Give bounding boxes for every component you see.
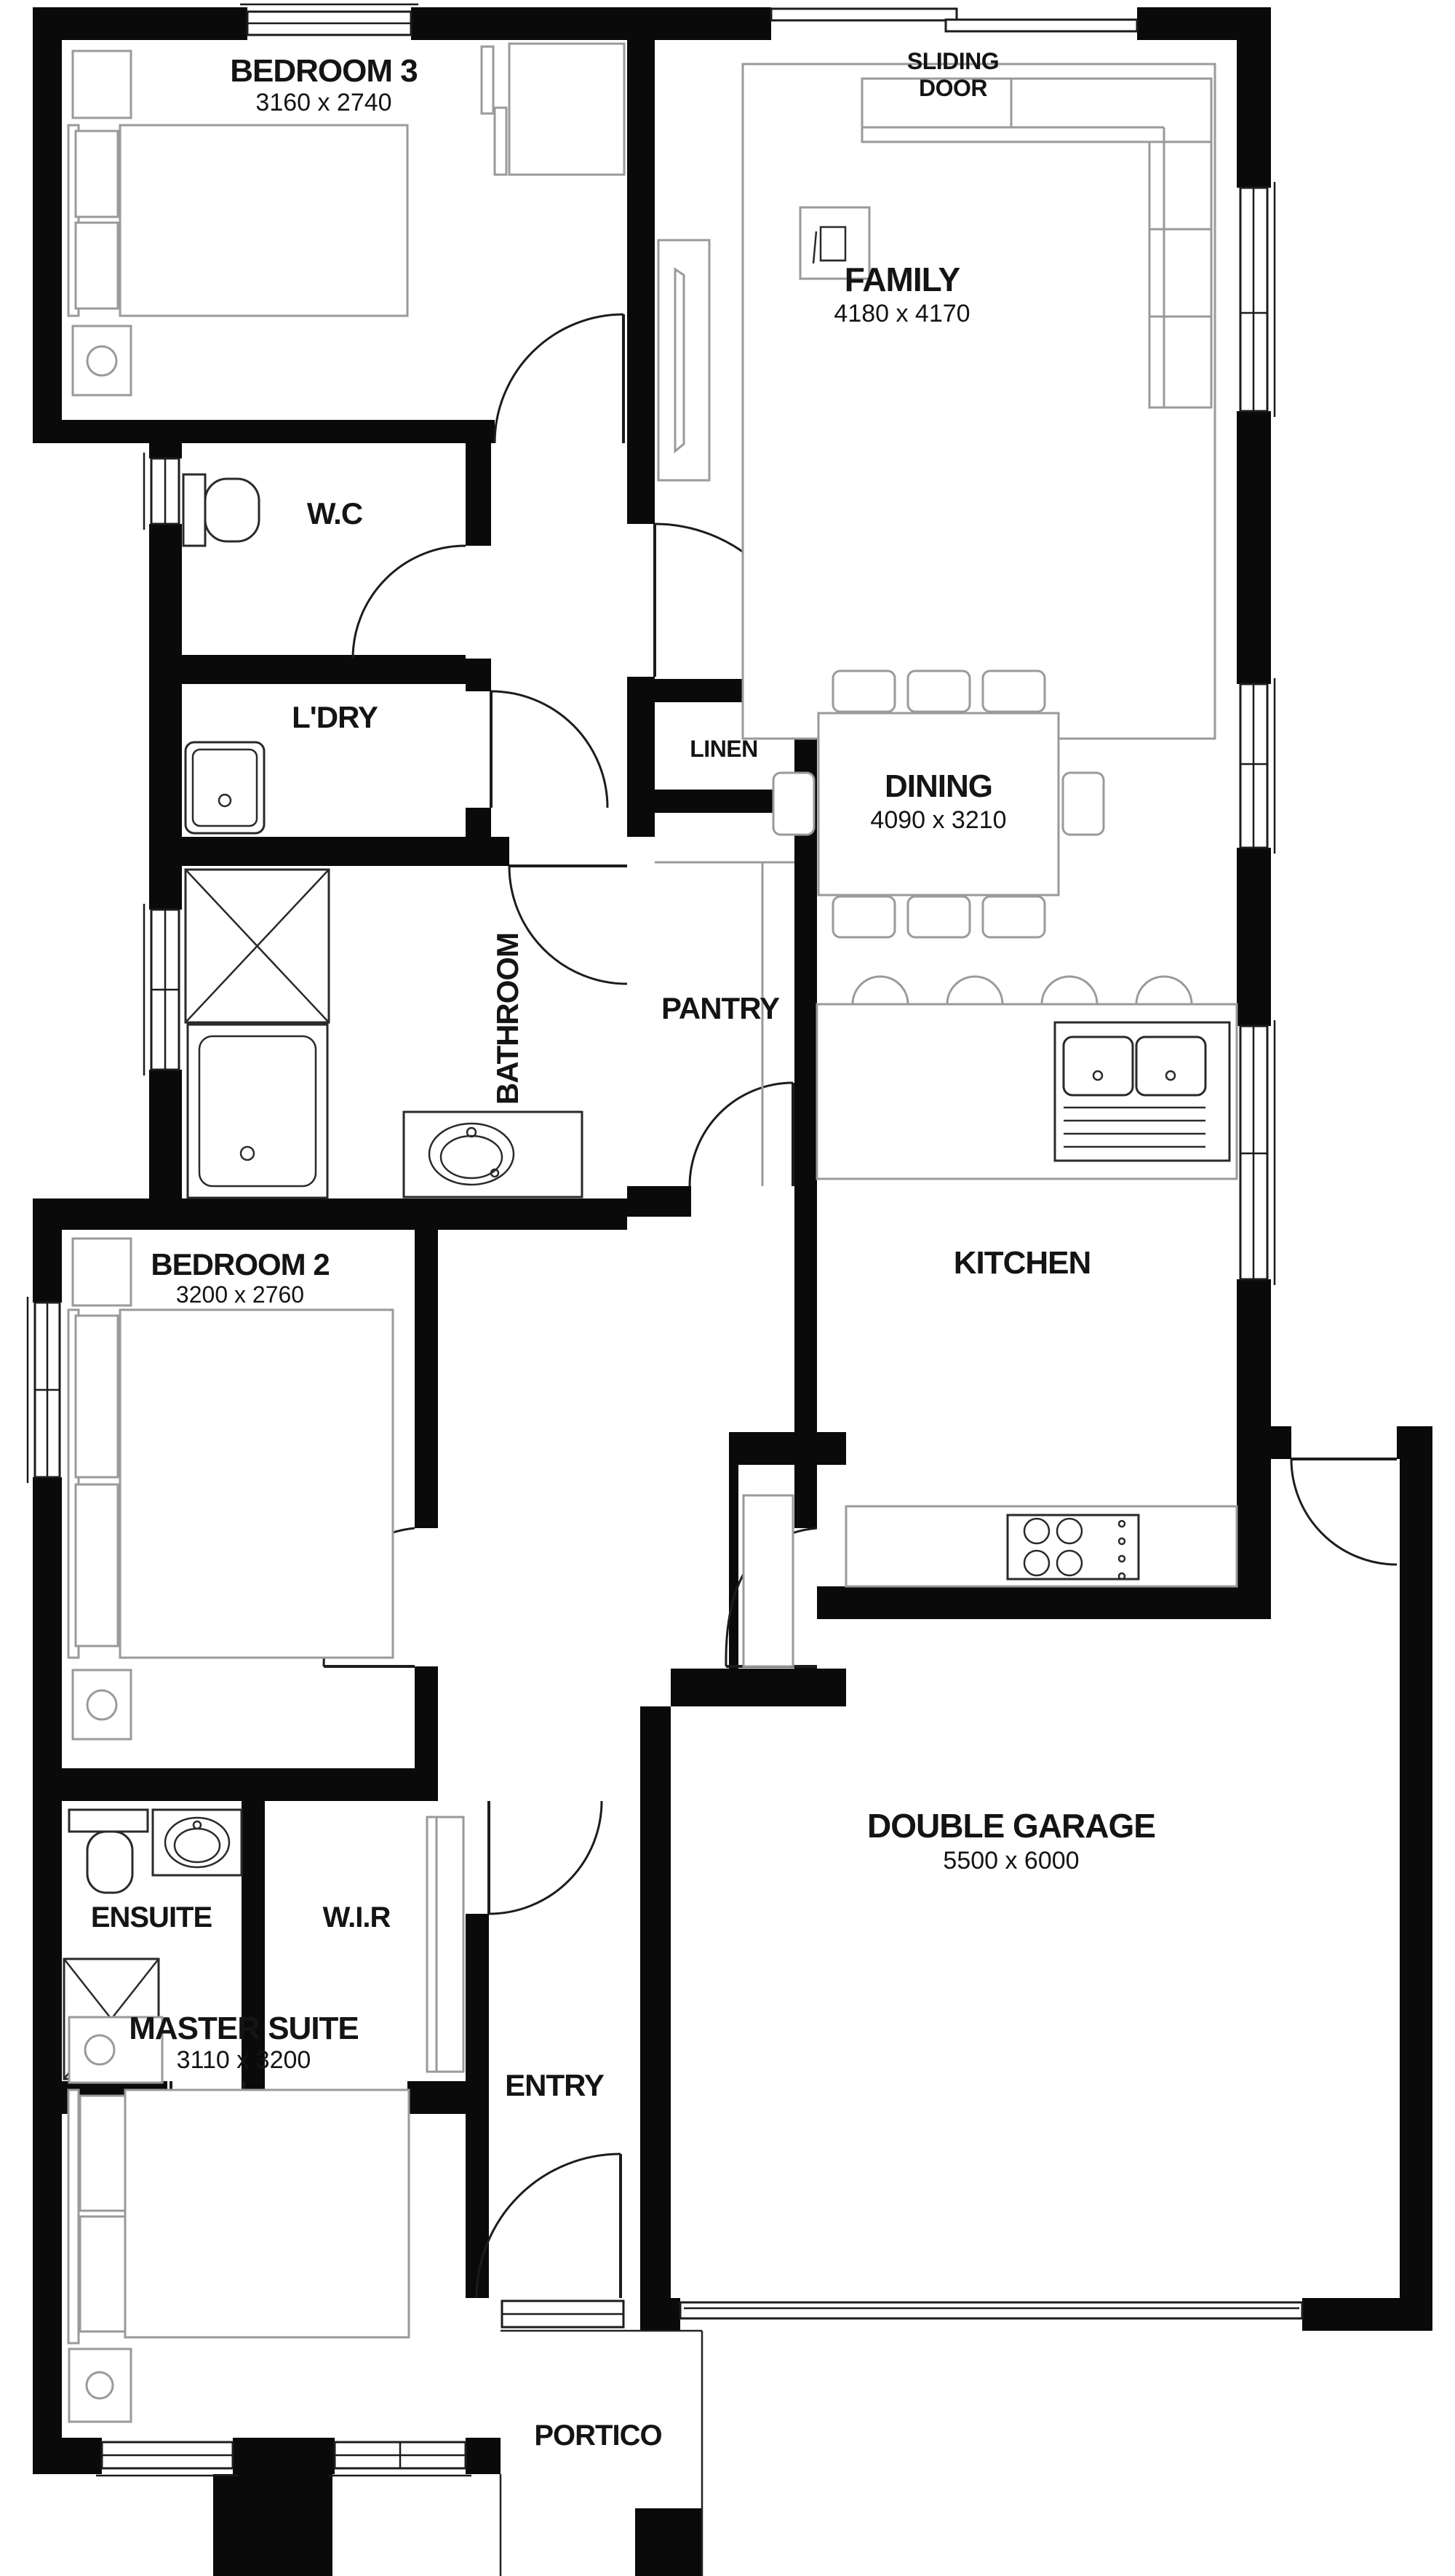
wall-garage-bottom-right [1302, 2298, 1432, 2331]
wall-left-bath [149, 1070, 182, 1198]
wall-ldry-east [466, 808, 491, 837]
door-garage-internal [1291, 1459, 1397, 1565]
dims-bedroom3: 3160 x 2740 [255, 89, 391, 116]
shower-icon [186, 870, 329, 1022]
wall-right-4 [1237, 1279, 1271, 1619]
pillow-icon [76, 131, 118, 217]
label-wc: W.C [307, 496, 363, 530]
wall-left-wc-a [149, 443, 182, 458]
headboard-icon [68, 2090, 79, 2343]
window-bed2-left [28, 1297, 60, 1483]
window-bathroom-left [144, 904, 179, 1076]
wall-right-3 [1237, 848, 1271, 1026]
label-garage: DOUBLE GARAGE [867, 1807, 1155, 1845]
window-bed3-top [240, 4, 418, 35]
label-bathroom: BATHROOM [490, 933, 525, 1105]
master-furniture [68, 2017, 409, 2422]
wall-left-bed2-a [33, 1230, 62, 1303]
label-sliding-2: DOOR [919, 75, 987, 101]
kitchen-bench-icon [846, 1506, 1237, 1586]
wall-garage-bottom-left [640, 2298, 680, 2331]
chair-icon [1063, 773, 1104, 835]
wall-bed2-east-b [415, 1666, 438, 1768]
dims-garage: 5500 x 6000 [943, 1847, 1079, 1875]
wall-kitchen-garage [817, 1586, 1271, 1619]
label-linen: LINEN [690, 736, 758, 762]
label-bedroom3: BEDROOM 3 [230, 53, 417, 89]
wall-garage-top-a [1271, 1426, 1291, 1459]
label-portico: PORTICO [534, 2420, 661, 2452]
sink-icon [1055, 1022, 1229, 1161]
wall-stub-left [213, 2474, 332, 2576]
wall-right-1 [1237, 40, 1271, 188]
chair-icon [908, 671, 970, 712]
family-rug [743, 64, 1215, 739]
floor-plan-drawing: BEDROOM 3 3160 x 2740 SLIDING DOOR FAMIL… [0, 0, 1455, 2576]
door-front-entry [477, 2154, 623, 2327]
wall-garage-top-b [1397, 1426, 1432, 1459]
wall-entry-west [466, 1914, 489, 2298]
pillow-icon [80, 2096, 125, 2211]
pillow-icon [80, 2217, 125, 2331]
fridge-icon [744, 1495, 793, 1666]
bed-icon [125, 2090, 409, 2337]
bed-icon [120, 1310, 393, 1658]
wall-ldry-bath-divider [149, 837, 466, 866]
wall-pantry-bottom-a [627, 1186, 691, 1217]
stool-icon [947, 977, 1002, 1004]
wall-bathdoor-jamb [466, 837, 509, 866]
floor-plan-page: BEDROOM 3 3160 x 2740 SLIDING DOOR FAMIL… [0, 0, 1455, 2576]
wall-wc-ldry-divider [149, 655, 466, 684]
bed2-furniture [68, 1239, 393, 1739]
wall-top-left [33, 7, 247, 40]
bathtub-icon [188, 1025, 327, 1198]
wall-left-bed3 [33, 40, 62, 420]
window-wc-left [144, 453, 179, 530]
label-kitchen: KITCHEN [954, 1245, 1091, 1281]
ensuite-basin-icon [153, 1810, 242, 1875]
wall-right-2 [1237, 411, 1271, 684]
chair-icon [983, 897, 1045, 937]
laundry-trough-icon [186, 742, 264, 833]
pillow-icon [76, 1316, 118, 1477]
chair-icon [983, 671, 1045, 712]
nightstand-icon [69, 2349, 131, 2422]
label-master: MASTER SUITE [129, 2011, 359, 2046]
wall-bed3-bottom [62, 420, 495, 443]
wall-fridge-top [729, 1432, 846, 1465]
wir-shelf-icon [427, 1817, 463, 2072]
wall-fridge-bottom [671, 1669, 846, 1706]
sliding-door [771, 9, 1137, 31]
wall-left-lower [33, 1477, 62, 2438]
window-dining-right [1240, 678, 1275, 854]
stool-icon [1042, 977, 1097, 1004]
wall-wc-east-b [466, 659, 491, 691]
ensuite-toilet-icon [69, 1810, 148, 1893]
door-bathroom [509, 866, 627, 984]
label-ldry: L'DRY [292, 700, 378, 734]
garage-door [680, 2302, 1302, 2318]
door-laundry [491, 691, 607, 808]
window-kitchen-right [1240, 1020, 1275, 1285]
label-wir: W.I.R [323, 1901, 391, 1933]
pillow-icon [76, 223, 118, 309]
wall-wc-east-a [466, 443, 491, 546]
tv-unit-icon [658, 240, 709, 480]
door-master [489, 1801, 602, 1914]
dims-dining: 4090 x 3210 [870, 806, 1006, 834]
wall-mid-east-b [794, 1459, 817, 1528]
chair-icon [773, 773, 814, 835]
wall-garage-right [1400, 1459, 1432, 2331]
bed-icon [120, 125, 407, 316]
nightstand-icon [73, 1670, 131, 1739]
vanity-basin-icon [404, 1112, 582, 1197]
label-family: FAMILY [845, 261, 960, 298]
window-family-right [1240, 182, 1275, 417]
wall-master-bottom-a [33, 2438, 102, 2474]
wall-master-bottom-c [466, 2438, 501, 2474]
dresser-icon [73, 1239, 131, 1305]
wall-entry-east [640, 1706, 671, 2298]
wall-stub-portico [635, 2508, 702, 2576]
door-wc [353, 546, 466, 659]
wall-bed2-bottom [33, 1768, 438, 1801]
wall-wir-bottom [407, 2081, 466, 2114]
wall-fridge-left [729, 1465, 738, 1669]
chair-icon [833, 671, 895, 712]
wall-bath-bottom [33, 1198, 627, 1230]
stool-icon [853, 977, 908, 1004]
label-pantry: PANTRY [661, 991, 780, 1025]
wall-bed2-east-a [415, 1230, 438, 1528]
chair-icon [833, 897, 895, 937]
dims-master: 3110 x 3200 [177, 2046, 311, 2074]
label-ensuite: ENSUITE [91, 1901, 212, 1933]
pillow-icon [76, 1484, 118, 1646]
kitchen-island-icon [817, 977, 1237, 1179]
stool-icon [1136, 977, 1192, 1004]
dining-table-icon [818, 713, 1059, 895]
nightstand-icon [73, 326, 131, 395]
window-master-bottom-1 [96, 2442, 239, 2476]
robe-icon [482, 44, 624, 175]
wc-toilet-icon [183, 474, 259, 546]
wall-hall-east-a [627, 40, 655, 524]
label-bedroom2: BEDROOM 2 [151, 1247, 329, 1281]
window-master-bottom-2 [329, 2442, 471, 2476]
wall-top-mid [411, 7, 771, 40]
label-entry: ENTRY [505, 2068, 605, 2102]
chair-icon [908, 897, 970, 937]
wall-top-right-corner [1137, 7, 1271, 40]
dims-family: 4180 x 4170 [834, 300, 970, 327]
label-dining: DINING [885, 768, 992, 804]
wall-master-bottom-b [233, 2438, 335, 2474]
door-bedroom3 [495, 314, 623, 443]
dresser-icon [73, 51, 131, 118]
dims-bedroom2: 3200 x 2760 [176, 1281, 304, 1308]
label-sliding-1: SLIDING [907, 48, 999, 74]
door-pantry [690, 1083, 793, 1186]
